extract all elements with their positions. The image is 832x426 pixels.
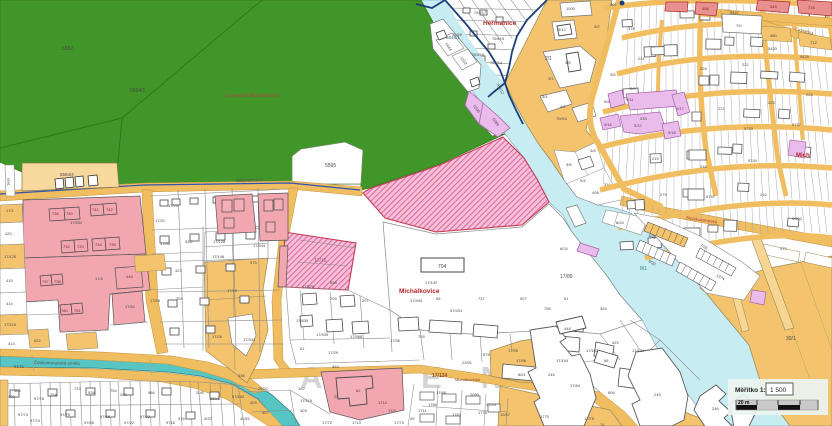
svg-text:17/10: 17/10 [227, 288, 238, 293]
svg-text:225: 225 [806, 92, 813, 97]
svg-text:543: 543 [770, 4, 777, 9]
svg-text:97/192: 97/192 [232, 394, 245, 399]
svg-text:17/119: 17/119 [4, 322, 17, 327]
svg-text:795: 795 [418, 334, 425, 339]
svg-text:Michálkovice: Michálkovice [399, 288, 440, 295]
svg-text:17/29: 17/29 [328, 350, 339, 355]
svg-text:17/98: 17/98 [516, 358, 527, 363]
svg-text:5737: 5737 [792, 122, 802, 127]
svg-text:460: 460 [770, 33, 777, 38]
svg-text:17/79: 17/79 [584, 416, 595, 421]
svg-text:20/5: 20/5 [196, 390, 205, 395]
svg-text:282: 282 [120, 392, 127, 397]
svg-text:279: 279 [660, 192, 667, 197]
svg-text:97/22: 97/22 [140, 414, 151, 419]
svg-text:97/65: 97/65 [100, 414, 111, 419]
svg-text:233: 233 [640, 116, 647, 121]
svg-text:17/968: 17/968 [350, 334, 363, 339]
svg-text:17/88: 17/88 [436, 390, 447, 395]
svg-text:7/II: 7/II [736, 23, 742, 28]
svg-text:17/104: 17/104 [556, 358, 569, 363]
svg-text:986: 986 [148, 390, 155, 395]
svg-text:49: 49 [410, 416, 415, 421]
svg-text:415: 415 [6, 278, 13, 283]
svg-text:3/8: 3/8 [566, 162, 572, 167]
svg-text:17/131: 17/131 [632, 348, 645, 353]
svg-text:Heřmanice: Heřmanice [483, 20, 517, 27]
svg-text:33/2: 33/2 [185, 239, 194, 244]
svg-text:741: 741 [92, 207, 99, 212]
svg-text:742: 742 [106, 207, 113, 212]
svg-text:254: 254 [50, 392, 57, 397]
svg-text:572: 572 [780, 246, 787, 251]
svg-text:448: 448 [564, 326, 571, 331]
svg-text:74: 74 [600, 422, 605, 426]
svg-text:17/3: 17/3 [388, 408, 397, 413]
svg-text:423: 423 [612, 340, 619, 345]
svg-text:1775: 1775 [478, 410, 488, 415]
svg-text:1763: 1763 [452, 412, 462, 417]
svg-text:17/89: 17/89 [560, 274, 573, 280]
svg-text:231: 231 [638, 56, 645, 61]
svg-text:5594/1: 5594/1 [130, 88, 146, 94]
svg-text:3/5: 3/5 [610, 72, 616, 77]
svg-text:Lesopark Michalkovice: Lesopark Michalkovice [225, 93, 280, 99]
svg-text:86: 86 [604, 358, 609, 363]
svg-text:250/1: 250/1 [210, 396, 221, 401]
svg-text:780: 780 [61, 308, 68, 313]
svg-text:17/24: 17/24 [486, 402, 497, 407]
svg-text:65: 65 [436, 296, 441, 301]
svg-text:575: 575 [483, 352, 490, 357]
svg-text:1 500: 1 500 [770, 387, 787, 394]
svg-text:97/78: 97/78 [34, 396, 45, 401]
svg-text:907: 907 [610, 2, 617, 7]
svg-text:2095: 2095 [470, 392, 480, 397]
svg-text:23/91: 23/91 [462, 360, 473, 365]
svg-text:5427: 5427 [730, 10, 740, 15]
svg-text:Mich: Mich [796, 153, 810, 159]
svg-text:408: 408 [592, 190, 599, 195]
svg-text:5/18: 5/18 [668, 130, 677, 135]
svg-text:Slépotečkova: Slépotečkova [236, 177, 264, 183]
svg-text:17/939: 17/939 [316, 332, 329, 337]
svg-text:769/13: 769/13 [490, 60, 503, 65]
svg-text:709: 709 [330, 296, 337, 301]
svg-text:735: 735 [109, 242, 116, 247]
svg-text:192: 192 [298, 386, 305, 391]
svg-text:6141: 6141 [14, 364, 25, 369]
svg-text:17/343: 17/343 [243, 337, 256, 342]
svg-text:420: 420 [8, 394, 15, 399]
svg-text:733: 733 [74, 386, 81, 391]
svg-text:363: 363 [332, 364, 339, 369]
svg-text:252/1: 252/1 [258, 386, 269, 391]
svg-text:17/839: 17/839 [296, 318, 309, 323]
svg-text:Michalkovická: Michalkovická [455, 377, 481, 382]
svg-text:17/36: 17/36 [390, 338, 401, 343]
svg-text:17/146: 17/146 [212, 254, 225, 259]
svg-text:413: 413 [8, 341, 15, 346]
svg-text:5425: 5425 [800, 54, 810, 59]
svg-text:715: 715 [808, 5, 815, 10]
svg-text:403: 403 [300, 408, 307, 413]
svg-text:754: 754 [110, 388, 117, 393]
svg-text:30/1: 30/1 [786, 336, 796, 342]
svg-text:5/12: 5/12 [634, 123, 643, 128]
svg-text:Měřítko 1:: Měřítko 1: [735, 387, 766, 394]
svg-text:734: 734 [95, 242, 102, 247]
svg-text:769/9: 769/9 [452, 32, 463, 37]
svg-text:17/1: 17/1 [6, 208, 15, 213]
svg-text:17/25: 17/25 [168, 203, 179, 208]
svg-text:733: 733 [77, 244, 84, 249]
svg-text:308: 308 [176, 296, 183, 301]
svg-text:5594/4: 5594/4 [60, 172, 74, 177]
svg-text:17/95: 17/95 [508, 348, 519, 353]
svg-text:3/12: 3/12 [558, 27, 567, 32]
svg-text:740: 740 [66, 211, 73, 216]
svg-text:5747: 5747 [706, 194, 716, 199]
svg-text:5/16: 5/16 [604, 122, 613, 127]
svg-text:17/53: 17/53 [160, 241, 171, 246]
svg-text:8/1: 8/1 [640, 266, 647, 272]
svg-text:223: 223 [768, 100, 775, 105]
svg-text:403: 403 [250, 400, 257, 405]
svg-text:738: 738 [54, 279, 61, 284]
svg-text:5420: 5420 [768, 46, 778, 51]
svg-text:5592: 5592 [62, 46, 73, 52]
svg-text:1711: 1711 [418, 408, 427, 413]
svg-text:17/430: 17/430 [410, 298, 423, 303]
svg-text:1712: 1712 [378, 400, 388, 405]
svg-text:210: 210 [760, 192, 767, 197]
svg-text:446: 446 [126, 274, 133, 279]
svg-text:364: 364 [14, 388, 21, 393]
svg-text:737: 737 [478, 296, 485, 301]
svg-text:17/15: 17/15 [314, 258, 327, 264]
svg-text:97/65: 97/65 [84, 420, 95, 425]
svg-text:8/24: 8/24 [560, 246, 569, 251]
svg-text:17/26: 17/26 [212, 334, 223, 339]
svg-text:245: 245 [548, 372, 555, 377]
svg-text:12/47: 12/47 [500, 412, 511, 417]
svg-text:907: 907 [520, 296, 527, 301]
svg-text:575: 575 [250, 260, 257, 265]
svg-text:403/1: 403/1 [240, 416, 251, 421]
svg-text:526: 526 [88, 390, 95, 395]
svg-text:222: 222 [742, 62, 749, 67]
svg-text:420: 420 [5, 231, 12, 236]
svg-text:407: 407 [262, 410, 269, 415]
svg-text:20 m: 20 m [738, 400, 750, 406]
svg-text:245: 245 [654, 392, 661, 397]
svg-text:769/19: 769/19 [492, 36, 505, 41]
svg-text:3/2: 3/2 [594, 24, 600, 29]
svg-text:5/17: 5/17 [676, 106, 685, 111]
svg-text:9/4: 9/4 [580, 178, 586, 183]
svg-text:3/4: 3/4 [542, 94, 548, 99]
svg-text:9716: 9716 [166, 420, 176, 425]
svg-text:769/17: 769/17 [474, 10, 487, 15]
svg-text:61: 61 [300, 346, 305, 351]
svg-text:97/74: 97/74 [18, 412, 29, 417]
svg-text:806: 806 [608, 390, 615, 395]
svg-text:17/119: 17/119 [300, 398, 313, 403]
svg-text:522: 522 [34, 338, 41, 343]
svg-text:17/344: 17/344 [253, 243, 266, 248]
svg-text:698: 698 [330, 280, 337, 285]
svg-text:378: 378 [628, 26, 635, 31]
svg-text:97/74: 97/74 [30, 418, 41, 423]
svg-text:712: 712 [810, 40, 817, 45]
svg-text:17/132: 17/132 [425, 280, 438, 285]
svg-text:5733: 5733 [744, 126, 754, 131]
svg-text:61: 61 [564, 296, 569, 301]
svg-text:5/202: 5/202 [792, 216, 803, 221]
svg-text:17/102: 17/102 [586, 348, 599, 353]
svg-text:5595: 5595 [325, 163, 336, 169]
svg-text:218: 218 [700, 164, 707, 169]
svg-text:336: 336 [238, 373, 245, 378]
svg-text:17/73: 17/73 [394, 420, 405, 425]
svg-text:737: 737 [42, 279, 49, 284]
svg-text:8/24: 8/24 [616, 220, 625, 225]
svg-text:323: 323 [175, 268, 182, 273]
svg-text:769/15: 769/15 [472, 52, 485, 57]
svg-text:1000: 1000 [566, 6, 576, 11]
svg-text:795: 795 [544, 306, 551, 311]
svg-text:3/8: 3/8 [565, 60, 571, 65]
svg-text:226: 226 [700, 66, 707, 71]
svg-text:704: 704 [438, 264, 447, 270]
svg-text:Českomoravská umělá: Českomoravská umělá [34, 359, 80, 366]
svg-text:4/8: 4/8 [590, 148, 596, 153]
svg-text:25: 25 [334, 394, 339, 399]
svg-text:246: 246 [712, 406, 719, 411]
svg-text:97/75: 97/75 [60, 412, 71, 417]
svg-text:57/431: 57/431 [450, 308, 463, 313]
svg-text:17/84: 17/84 [570, 383, 581, 388]
svg-text:221: 221 [718, 106, 725, 111]
svg-text:4/37: 4/37 [204, 416, 213, 421]
svg-text:17/21: 17/21 [155, 218, 166, 223]
svg-text:17/124: 17/124 [432, 373, 448, 379]
svg-text:17/570: 17/570 [302, 284, 315, 289]
svg-text:17/72: 17/72 [322, 420, 333, 425]
svg-text:732: 732 [63, 244, 70, 249]
svg-text:2/9: 2/9 [630, 86, 636, 91]
svg-text:17/552: 17/552 [70, 220, 83, 225]
svg-text:4/2: 4/2 [560, 104, 566, 109]
svg-text:219: 219 [652, 156, 659, 161]
svg-text:17/128: 17/128 [213, 239, 226, 244]
svg-text:1775: 1775 [540, 414, 550, 419]
svg-text:458: 458 [702, 6, 709, 11]
svg-text:5740: 5740 [748, 158, 758, 163]
svg-text:781: 781 [74, 308, 81, 313]
svg-text:17/120: 17/120 [4, 254, 17, 259]
svg-text:414: 414 [6, 301, 13, 306]
svg-text:1713: 1713 [352, 420, 362, 425]
svg-text:62: 62 [356, 388, 361, 393]
svg-text:2/1: 2/1 [545, 56, 552, 62]
svg-text:207: 207 [362, 298, 369, 303]
svg-text:70/9/1: 70/9/1 [556, 116, 568, 121]
svg-text:976: 976 [178, 416, 185, 421]
svg-text:97/22: 97/22 [124, 420, 135, 425]
svg-text:1760: 1760 [428, 402, 438, 407]
svg-text:80/1: 80/1 [518, 372, 527, 377]
svg-text:363: 363 [600, 306, 607, 311]
svg-text:739: 739 [52, 211, 59, 216]
svg-text:5/11: 5/11 [626, 97, 634, 102]
svg-text:17/4: 17/4 [95, 276, 104, 281]
svg-text:17/58: 17/58 [150, 298, 161, 303]
svg-text:5591: 5591 [6, 178, 10, 186]
svg-text:17/61: 17/61 [125, 304, 136, 309]
svg-text:5/8: 5/8 [604, 99, 610, 104]
svg-text:3/1: 3/1 [548, 76, 554, 81]
